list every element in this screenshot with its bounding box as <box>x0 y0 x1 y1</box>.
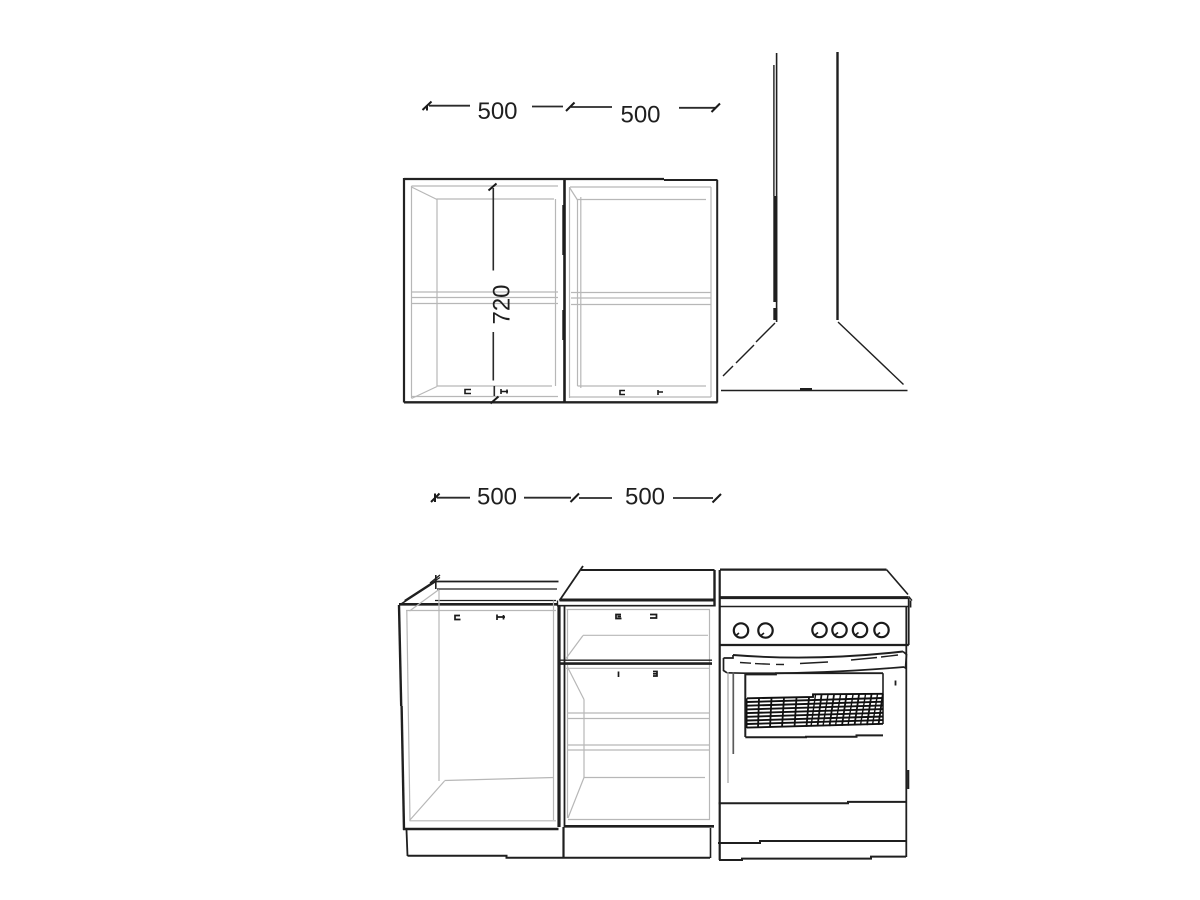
svg-text:500: 500 <box>477 484 517 511</box>
svg-text:500: 500 <box>477 98 517 125</box>
svg-text:500: 500 <box>620 102 660 129</box>
svg-text:500: 500 <box>625 484 665 511</box>
svg-text:720: 720 <box>489 284 516 324</box>
